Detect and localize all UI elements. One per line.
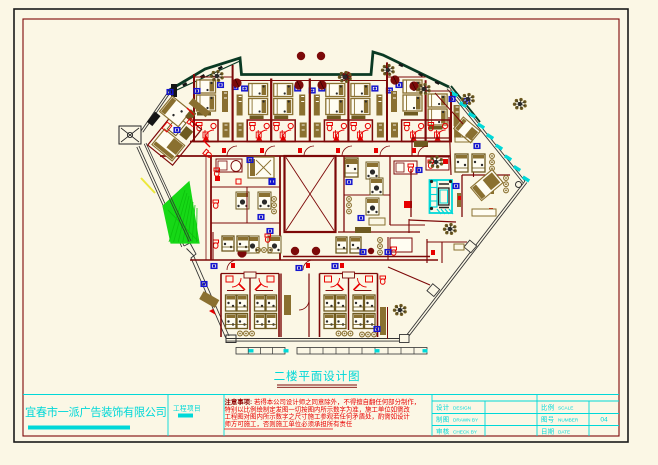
svg-text:工程项目: 工程项目 [173,404,201,413]
svg-text:比例: 比例 [541,403,554,412]
svg-text:SCALE: SCALE [558,406,573,411]
svg-text:NUMBER: NUMBER [558,418,579,423]
svg-text:设计: 设计 [436,403,450,412]
svg-text:日期: 日期 [541,428,554,436]
svg-text:师方可施工，否则施工单位必须承担所有责任: 师方可施工，否则施工单位必须承担所有责任 [225,419,353,428]
svg-text:审核: 审核 [436,427,450,436]
svg-text:宜春市一派广告装饰有限公司: 宜春市一派广告装饰有限公司 [25,405,167,419]
svg-text:制图: 制图 [436,415,449,424]
svg-text:工程图对图内所示数字之尺寸施工参观若任何矛盾处，酌需如设计: 工程图对图内所示数字之尺寸施工参观若任何矛盾处，酌需如设计 [225,412,411,421]
svg-text:DESIGN: DESIGN [453,406,471,411]
svg-text:图号: 图号 [541,416,554,424]
svg-text:二楼平面设计图: 二楼平面设计图 [274,369,361,383]
svg-text:DATE: DATE [558,430,570,435]
svg-text:04: 04 [600,417,608,424]
svg-text:注意事项: 若得本公司设计师之同意除外，不得擅自翻任何部分制: 注意事项: 若得本公司设计师之同意除外，不得擅自翻任何部分制作， [225,397,421,406]
svg-text:特别以比例绘制定发图一切按图内所示数字为准，施工单位如需改: 特别以比例绘制定发图一切按图内所示数字为准，施工单位如需改 [225,404,411,413]
svg-text:CHECK BY: CHECK BY [453,430,478,435]
svg-text:DRAWN BY: DRAWN BY [453,418,479,423]
